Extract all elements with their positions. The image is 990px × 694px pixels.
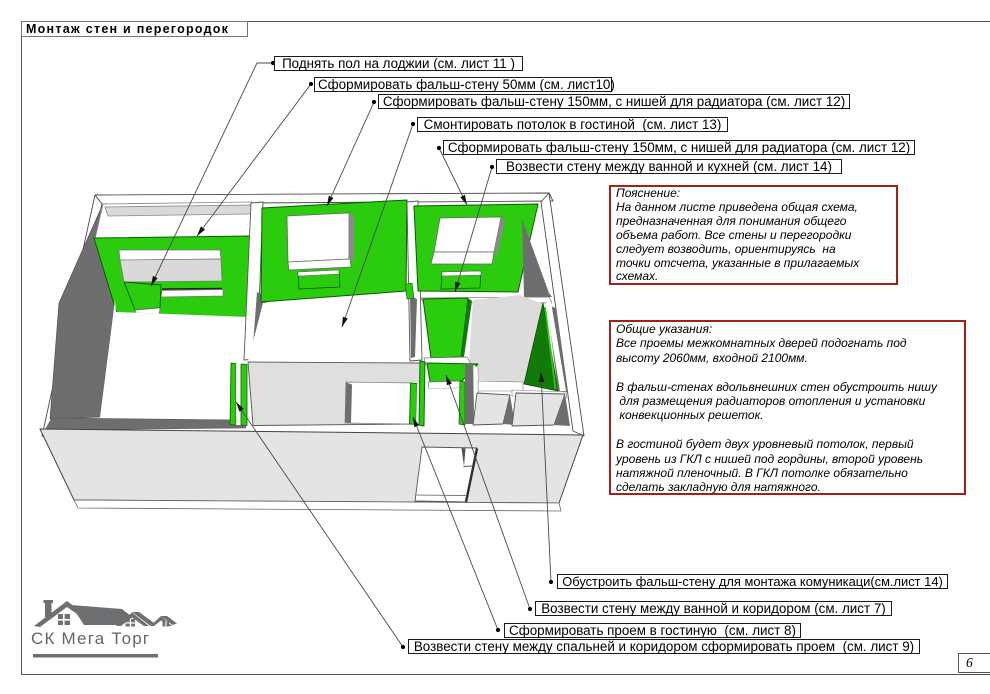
svg-text:СК Мега Торг: СК Мега Торг <box>31 629 150 648</box>
